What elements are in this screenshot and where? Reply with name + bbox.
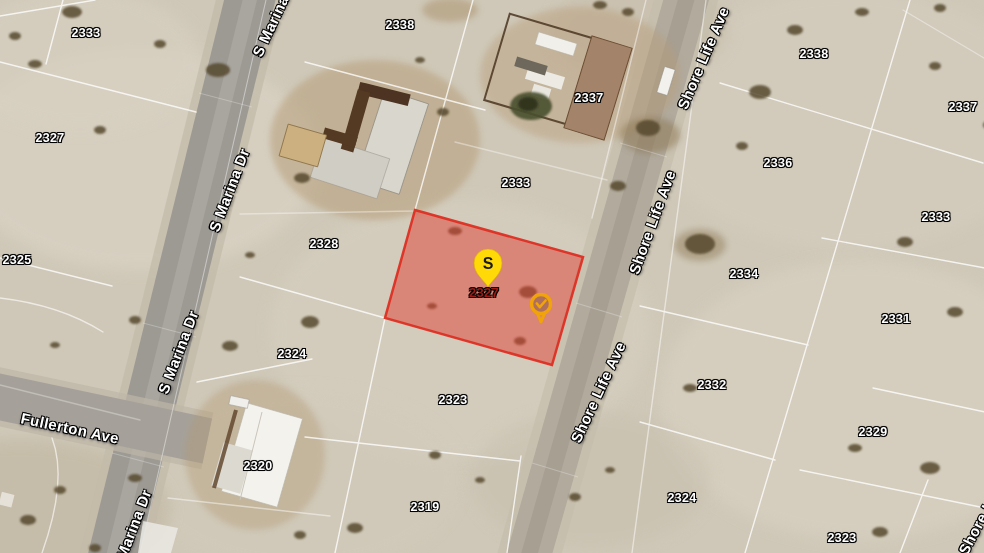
parcel-label: 2319 [410, 500, 439, 514]
parcel-label: 2329 [858, 425, 887, 439]
parcel-label: 2325 [2, 253, 31, 267]
listing-pin-marker[interactable]: S [471, 247, 505, 291]
parcel-label: 2338 [799, 47, 828, 61]
parcel-label: 2333 [921, 210, 950, 224]
parcel-label: 2333 [71, 26, 100, 40]
parcel-label: 2337 [574, 91, 603, 105]
check-pin-icon[interactable] [526, 290, 556, 328]
parcel-label: 2328 [309, 237, 338, 251]
parcel-label: 2333 [501, 176, 530, 190]
parcel-label: 2327 [35, 131, 64, 145]
parcel-label: 2324 [667, 491, 696, 505]
parcel-label: 2323 [438, 393, 467, 407]
parcel-label: 2334 [729, 267, 758, 281]
parcel-label: 2336 [763, 156, 792, 170]
parcel-label: 2320 [243, 459, 272, 473]
parcel-label: 2331 [881, 312, 910, 326]
parcel-label: 2324 [277, 347, 306, 361]
satellite-map[interactable]: 2333 2327 2325 2338 2337 2333 2328 2324 … [0, 0, 984, 553]
parcel-label: 2338 [385, 18, 414, 32]
pin-letter: S [483, 255, 494, 272]
parcel-label: 2337 [948, 100, 977, 114]
parcel-label: 2332 [697, 378, 726, 392]
parcel-label: 2323 [827, 531, 856, 545]
